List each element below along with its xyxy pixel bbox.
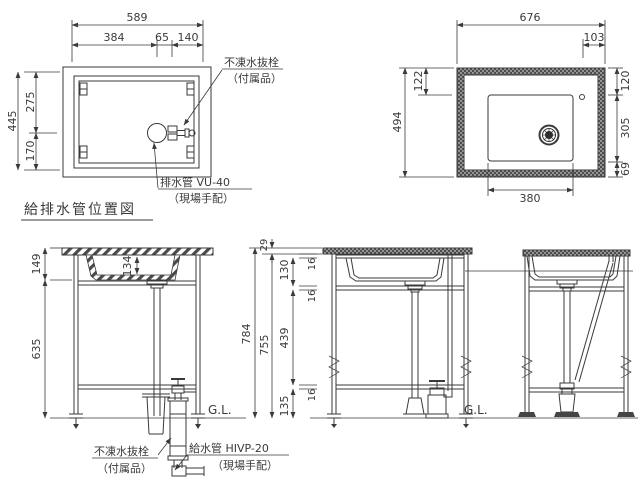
dim-589: 589 (127, 11, 148, 24)
leader-freeze-valve-bottom (158, 438, 171, 455)
dim-29: 29 (259, 239, 270, 252)
dim-635: 635 (30, 339, 43, 360)
dim-16-bottom: 16 (307, 389, 318, 402)
dim-122: 122 (412, 71, 425, 92)
supply-pipe-note: （現場手配） (212, 458, 278, 472)
dim-69: 69 (619, 162, 632, 176)
dim-130: 130 (278, 260, 291, 281)
technical-drawing: 589 384 65 140 445 275 170 不凍水抜栓 （付属品） 排… (0, 0, 640, 492)
dim-103: 103 (584, 31, 605, 44)
dim-494: 494 (391, 112, 404, 133)
dim-384: 384 (104, 31, 125, 44)
dim-140: 140 (178, 31, 199, 44)
side-rails (336, 255, 464, 389)
supply-pipe-label: 給水管 HIVP-20 (189, 441, 269, 455)
dim-65: 65 (155, 31, 169, 44)
dim-149: 149 (30, 254, 43, 275)
countertop-section (62, 248, 213, 255)
dim-170: 170 (24, 141, 37, 162)
drain-strainer-icon (540, 126, 559, 145)
leader-freeze-valve (184, 70, 222, 125)
dim-755: 755 (258, 335, 271, 356)
dim-135: 135 (278, 396, 291, 417)
dim-784: 784 (240, 324, 253, 345)
plan-freeze-valve-note: （付属品） (227, 72, 282, 85)
top-view: 676 103 122 494 120 305 69 380 (391, 11, 632, 205)
gl-label-right: G.L. (464, 403, 488, 417)
plan-drain-note: （現場手配） (168, 191, 234, 205)
drawing-sheet: 589 384 65 140 445 275 170 不凍水抜栓 （付属品） 排… (0, 0, 640, 492)
front-freeze-valve-note: （付属品） (97, 462, 152, 475)
dim-134: 134 (121, 256, 134, 277)
dim-275: 275 (24, 92, 37, 113)
front-view: 149 635 134 G.L. 不凍水抜栓 （付属品） 給水管 HIVP-20… (30, 248, 289, 476)
side-drain-pipe (403, 292, 427, 414)
front-drain-pipe (147, 280, 167, 416)
page-title: 給排水管位置図 (24, 202, 136, 218)
dim-676: 676 (520, 11, 541, 24)
freeze-valve-symbol (168, 126, 195, 140)
plan-view: 589 384 65 140 445 275 170 不凍水抜栓 （付属品） 排… (6, 11, 283, 205)
side-view: 784 29 755 130 439 135 16 16 16 G.L. (240, 239, 638, 428)
plan-frame (63, 67, 211, 177)
gl-label-left: G.L. (208, 403, 232, 417)
drain-hole (148, 124, 167, 143)
underground-drain-cup (142, 394, 170, 434)
plan-drain-label: 排水管 VU-40 (160, 175, 230, 189)
dim-439: 439 (278, 328, 291, 349)
side-basin (346, 258, 444, 292)
dim-120: 120 (619, 71, 632, 92)
dim-16-top: 16 (307, 258, 318, 271)
dim-380: 380 (520, 192, 541, 205)
side-view-right (465, 250, 635, 417)
leader-supply-pipe (175, 455, 187, 470)
side-legs (327, 254, 473, 428)
dim-16-mid: 16 (307, 290, 318, 303)
leader-drain-pipe (154, 143, 158, 188)
dim-305: 305 (619, 118, 632, 139)
counter-surface (464, 75, 598, 170)
side-countertop (323, 248, 472, 254)
right-countertop (523, 250, 630, 256)
plan-freeze-valve-label: 不凍水抜栓 (224, 55, 279, 69)
dim-445: 445 (6, 111, 19, 132)
front-rails (78, 281, 196, 389)
front-freeze-valve-label: 不凍水抜栓 (94, 444, 149, 458)
